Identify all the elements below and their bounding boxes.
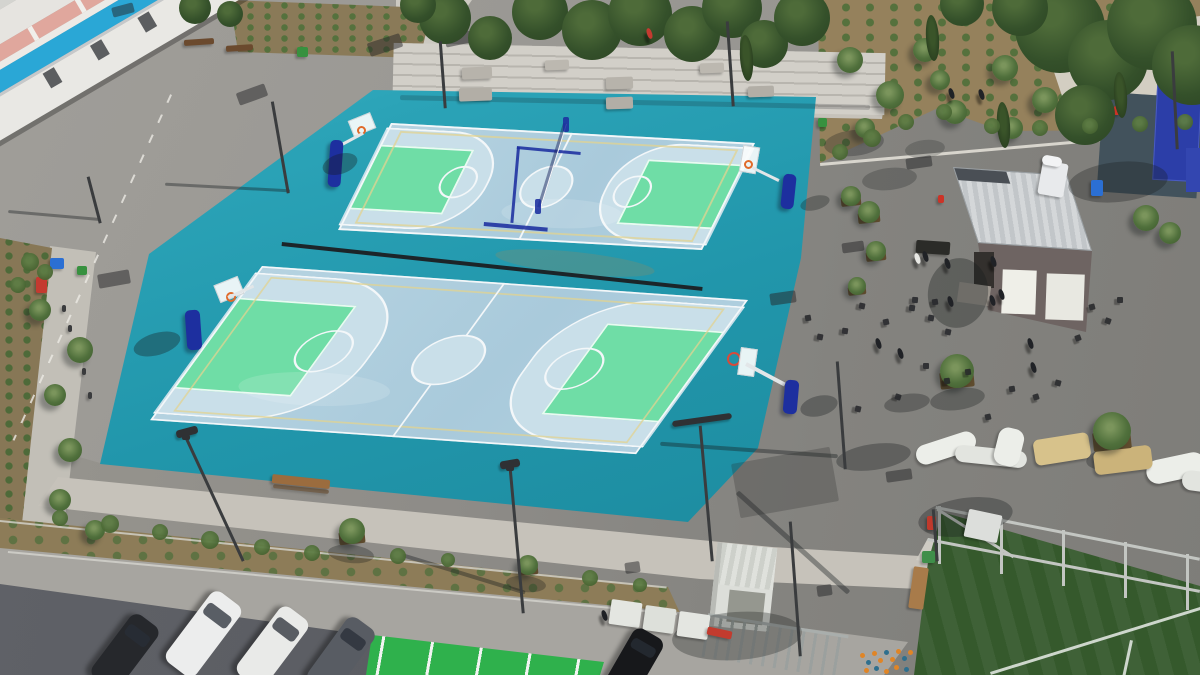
- ball: [894, 665, 899, 670]
- ball: [890, 657, 895, 662]
- ball: [860, 653, 865, 658]
- ball: [866, 660, 871, 665]
- ball: [896, 649, 901, 654]
- ball: [864, 668, 869, 673]
- balls-layer: [0, 0, 1200, 675]
- ball: [902, 656, 907, 661]
- ball: [884, 669, 889, 674]
- ball: [884, 650, 889, 655]
- ball: [878, 658, 883, 663]
- ball: [908, 650, 913, 655]
- ball: [904, 667, 909, 672]
- ball: [874, 666, 879, 671]
- aerial-photo: [0, 0, 1200, 675]
- ball: [872, 651, 877, 656]
